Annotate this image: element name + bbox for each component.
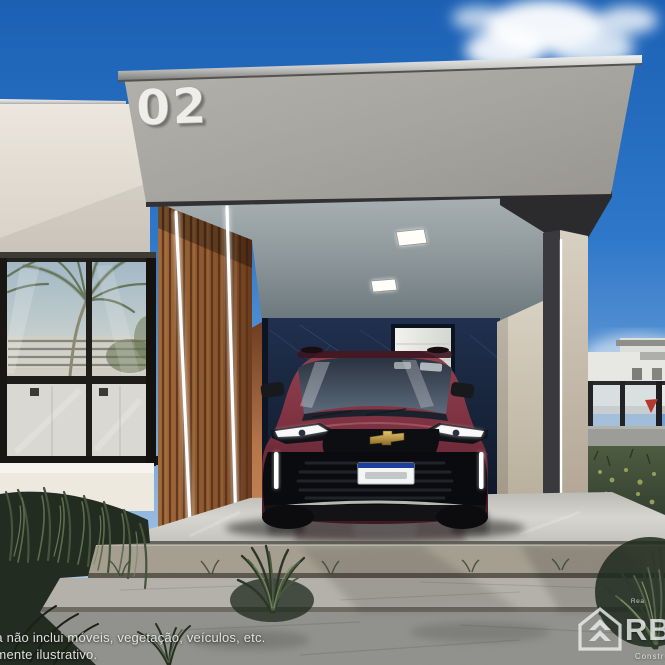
disclaimer-text: da não inclui móveis, vegetação, veículo… — [0, 629, 266, 663]
house-number: 02 — [135, 77, 209, 136]
architectural-render-scene: 02 02 — [0, 0, 665, 665]
wheel-left — [262, 505, 314, 529]
watermark-brand-text: RBA — [625, 614, 665, 645]
disclaimer-line-2: amente ilustrativo. — [0, 646, 266, 663]
house-logo-icon — [577, 606, 623, 652]
window — [0, 238, 162, 466]
sun-visor — [420, 362, 443, 372]
ceiling-light-1 — [396, 229, 427, 246]
ceiling-light-2 — [371, 279, 397, 292]
window-lower-panes — [6, 384, 148, 456]
drl-strip-right — [479, 452, 484, 489]
boundary-fence — [586, 381, 665, 450]
car-roof — [298, 351, 453, 358]
render-canvas: 02 02 — [0, 0, 665, 665]
wood-slat-panel — [158, 198, 252, 546]
plate-blue-band — [358, 463, 414, 468]
wheel-right — [436, 505, 488, 529]
left-wall — [0, 99, 150, 264]
drl-strip-left — [274, 452, 279, 489]
watermark-logo: Rea RBA Construt — [577, 598, 665, 665]
watermark-top-text: Rea — [631, 598, 645, 605]
watermark-sub-text: Construt — [635, 652, 665, 661]
disclaimer-line-1: da não inclui móveis, vegetação, veículo… — [0, 629, 266, 646]
license-plate — [358, 463, 414, 484]
